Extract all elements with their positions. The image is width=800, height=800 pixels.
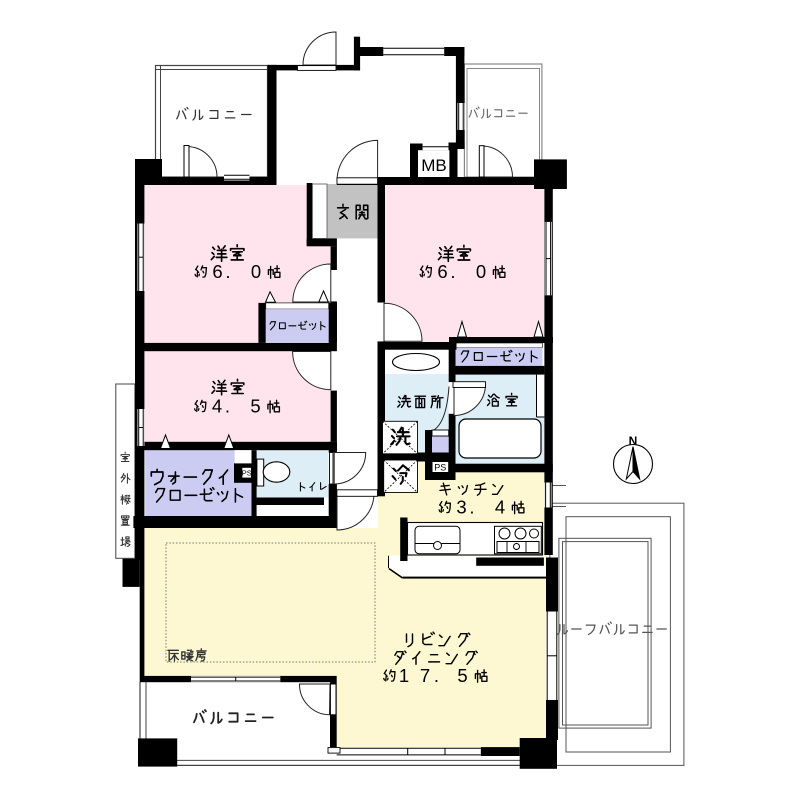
svg-text:4: 4	[495, 497, 505, 518]
svg-text:.: .	[469, 497, 474, 518]
svg-text:7: 7	[420, 665, 430, 686]
svg-text:6: 6	[437, 261, 447, 282]
svg-text:MB: MB	[421, 156, 447, 175]
svg-text:5: 5	[457, 665, 467, 686]
svg-text:0: 0	[476, 261, 486, 282]
svg-text:0: 0	[251, 261, 261, 282]
svg-text:.: .	[450, 261, 455, 282]
svg-text:3: 3	[456, 497, 466, 518]
svg-text:1: 1	[399, 665, 409, 686]
svg-text:PS: PS	[434, 463, 446, 473]
svg-text:N: N	[629, 434, 638, 448]
svg-text:.: .	[434, 665, 439, 686]
svg-text:6: 6	[212, 261, 222, 282]
svg-text:.: .	[225, 396, 230, 417]
svg-text:4: 4	[212, 396, 222, 417]
svg-text:5: 5	[250, 396, 260, 417]
svg-text:.: .	[225, 261, 230, 282]
svg-text:PS: PS	[242, 469, 252, 478]
